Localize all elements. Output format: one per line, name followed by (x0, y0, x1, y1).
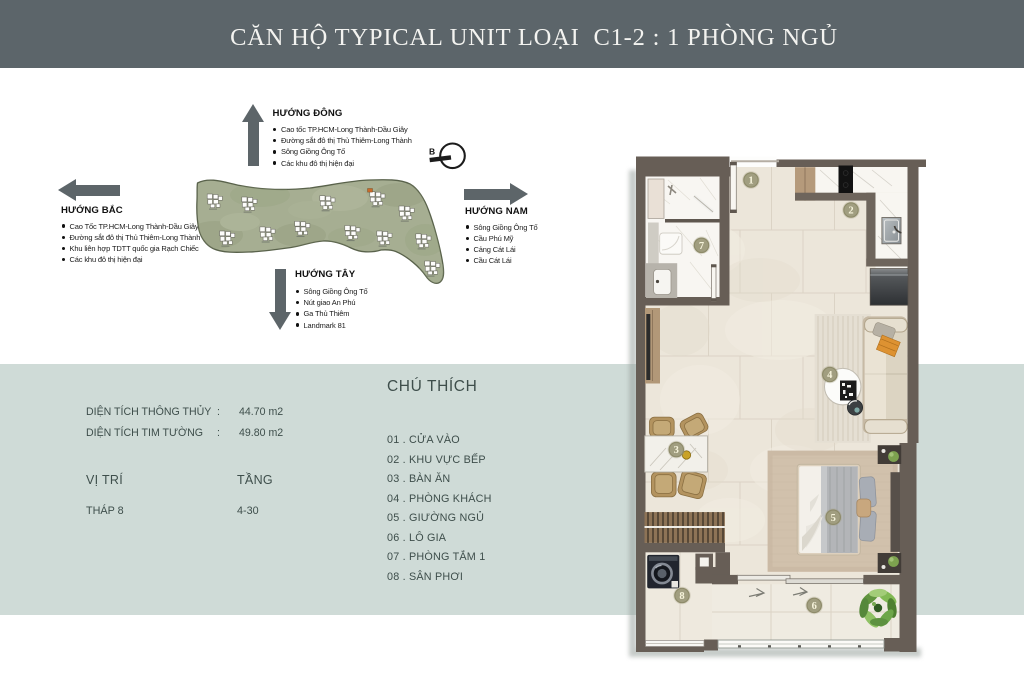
svg-text:3: 3 (674, 445, 679, 456)
svg-text:B: B (429, 147, 435, 157)
svg-text:4: 4 (827, 370, 833, 381)
svg-text:8: 8 (679, 591, 684, 602)
svg-text:6: 6 (812, 601, 817, 612)
svg-text:7: 7 (699, 241, 704, 252)
svg-text:5: 5 (831, 513, 836, 524)
svg-text:2: 2 (848, 206, 853, 217)
svg-text:1: 1 (748, 176, 753, 187)
